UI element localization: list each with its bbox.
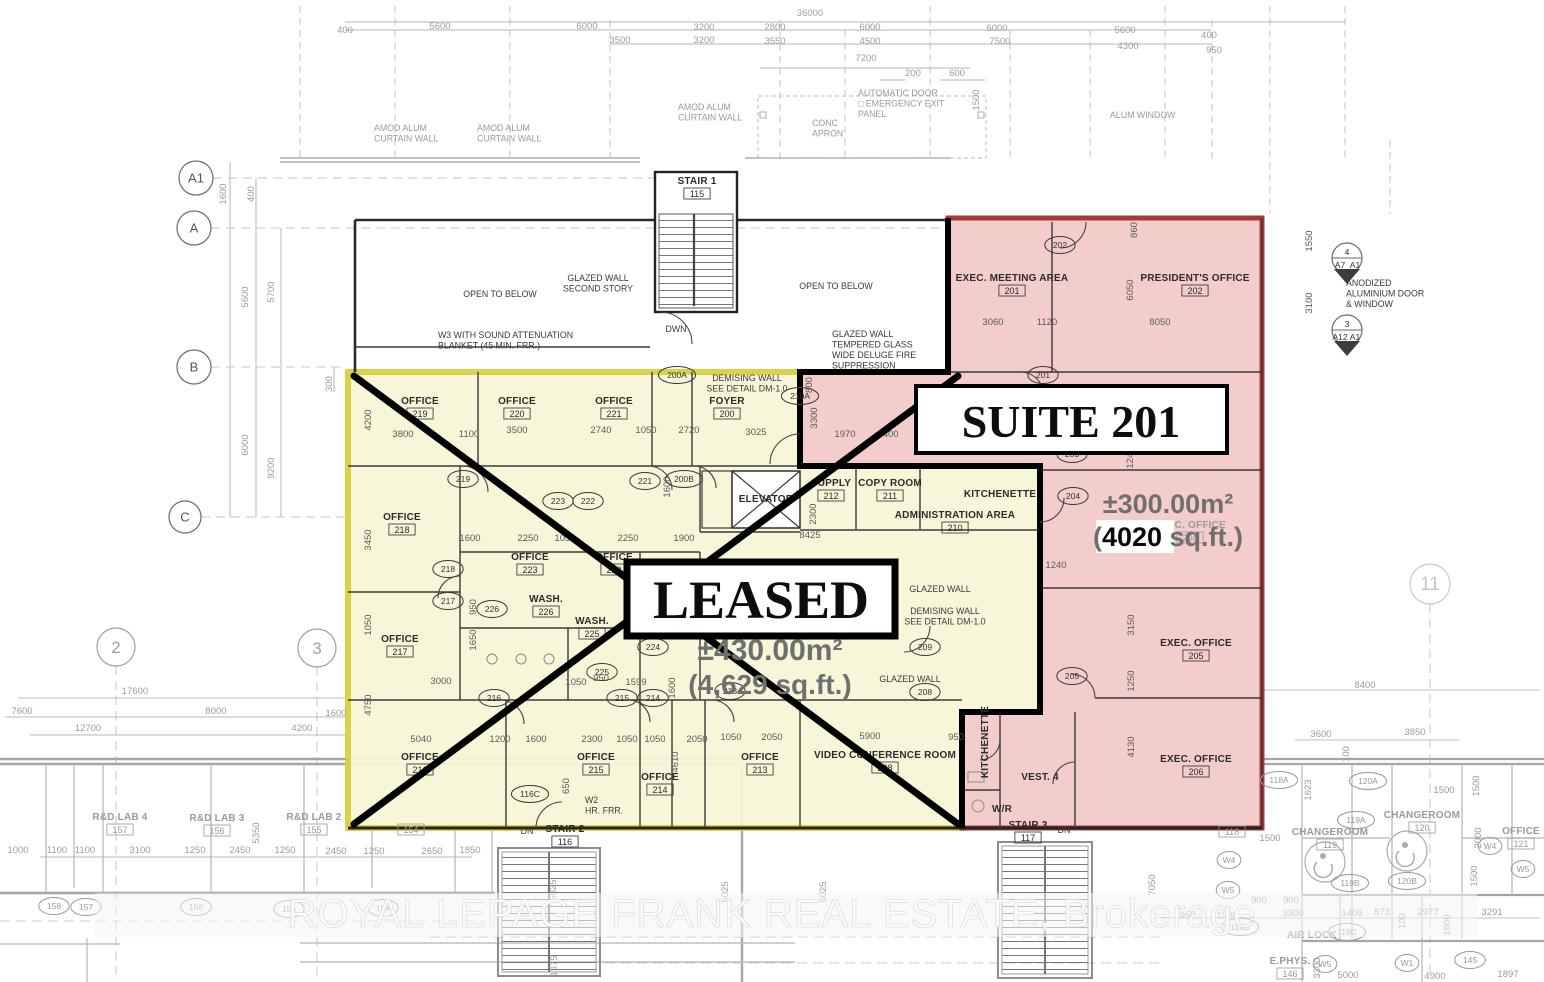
leased-area-m2: ±430.00m²: [698, 634, 843, 667]
room-number: 218: [394, 525, 409, 535]
room-number: 223: [522, 565, 537, 575]
dimension-label: 8400: [1354, 680, 1375, 691]
dimension-label: 1550: [1304, 230, 1315, 251]
dimension-label: 3200: [693, 35, 714, 46]
dimension-label: 1250: [274, 845, 295, 856]
dimension-label: 860: [1129, 222, 1140, 238]
dimension-label: 3291: [1481, 907, 1502, 918]
dimension-label: 400: [246, 186, 257, 202]
room-label: W/R: [992, 804, 1013, 815]
room-label: WASH.: [575, 616, 609, 627]
floor-plan-page: 3600040056006000320028006000600056004003…: [0, 0, 1544, 982]
room-label: OFFICE: [577, 752, 615, 763]
room-label: OFFICE: [381, 634, 419, 645]
door-tag: W5: [1517, 864, 1530, 874]
room-label: STAIR 1: [678, 176, 717, 187]
dimension-label: 7600: [11, 706, 32, 717]
room-number: 215: [588, 765, 603, 775]
room-label: OFFICE: [1502, 826, 1540, 837]
dimension-label: 4900: [1424, 971, 1445, 982]
dimension-label: 1100: [75, 845, 95, 856]
room-number: 157: [112, 825, 127, 835]
room-number: 202: [1187, 286, 1202, 296]
dimension-label: 2300: [808, 503, 819, 524]
room-number: 156: [209, 826, 224, 836]
dimension-label: 2300: [581, 734, 602, 745]
annotation-note: GLAZED WALL: [879, 674, 940, 684]
room-number: 121: [1513, 839, 1528, 849]
dimension-label: 1850: [459, 845, 480, 856]
dimension-label: 1897: [1497, 969, 1518, 980]
room-number: 221: [606, 409, 621, 419]
dimension-label: 3200: [693, 22, 714, 33]
room-number: 201: [1004, 286, 1019, 296]
room-label: OFFICE: [401, 396, 439, 407]
room-number: 118: [1225, 827, 1239, 837]
room-number: 205: [1188, 651, 1203, 661]
room-label: R&D LAB 2: [286, 812, 341, 823]
dimension-label: 1050: [720, 732, 741, 743]
room-number: 120: [1414, 823, 1429, 833]
dimension-label: 5600: [429, 21, 450, 32]
dimension-label: 2450: [229, 845, 250, 856]
door-tag: 222: [581, 496, 595, 506]
door-tag: 208: [918, 687, 932, 697]
door-tag: 200B: [674, 474, 694, 484]
dimension-label: 3600: [1310, 729, 1331, 740]
room-number: 212: [823, 491, 838, 501]
room-label: VEST. 4: [1021, 772, 1059, 783]
room-number: 154: [403, 825, 418, 835]
room-label: OFFICE: [498, 396, 536, 407]
door-tag: 201: [1036, 370, 1050, 380]
dimension-label: 200: [905, 68, 921, 79]
door-tag: 118A: [1269, 775, 1289, 785]
door-tag: 219: [456, 474, 470, 484]
dimension-label: 2740: [590, 425, 611, 436]
door-tag: 119B: [1340, 878, 1360, 888]
dimension-label: 3150: [1126, 614, 1137, 635]
grid-bubble-label: A: [190, 221, 199, 236]
dimension-label: 400: [337, 25, 353, 36]
door-tag: 205: [1065, 671, 1079, 681]
room-number: 225: [584, 629, 599, 639]
dimension-label: 3500: [609, 35, 630, 46]
door-tag: 120A: [1358, 776, 1378, 786]
door-tag: 217: [441, 596, 455, 606]
room-label: ADMINISTRATION AREA: [895, 510, 1015, 521]
room-label: STAIR 3: [1009, 820, 1048, 831]
dimension-label: 1050: [644, 734, 665, 745]
room-number: 210: [947, 523, 962, 533]
suite-area-m2: ±300.00m²: [1103, 489, 1233, 519]
watermark: ROYAL LEPAGE FRANK REAL ESTATE, Brokerag…: [95, 892, 1477, 937]
annotation-note: GLAZED WALLTEMPERED GLASSWIDE DELUGE FIR…: [832, 329, 916, 371]
dimension-label: 5700: [266, 281, 277, 302]
annotation-note: AMOD ALUMCURTAIN WALL: [477, 123, 541, 144]
dimension-label: 5350: [251, 822, 262, 843]
grid-bubble-label: 2: [111, 638, 120, 657]
dimension-label: 100: [1341, 746, 1352, 762]
dimension-label: 1600: [667, 677, 678, 698]
door-tag: 200A: [667, 370, 687, 380]
dimension-label: 2720: [678, 425, 699, 436]
dimension-label: 4200: [363, 409, 374, 430]
dimension-label: 4750: [363, 694, 374, 715]
dimension-label: 950: [948, 732, 964, 743]
door-tag: 120B: [1397, 876, 1417, 886]
dimension-label: 3000: [430, 676, 451, 687]
room-number: 220: [509, 409, 524, 419]
dimension-label: 1500: [1433, 785, 1454, 796]
dimension-label: 17600: [122, 686, 148, 697]
grid-bubble-label: B: [190, 360, 199, 375]
dimension-label: 3060: [982, 317, 1003, 328]
annotation-note: OPEN TO BELOW: [463, 289, 537, 299]
door-tag: 210A: [790, 391, 810, 401]
door-tag: 202: [1053, 240, 1067, 250]
annotation-note: AMOD ALUMCURTAIN WALL: [678, 102, 742, 123]
door-tag: W5: [1319, 959, 1332, 969]
dimension-label: 6050: [1125, 279, 1136, 300]
dimension-label: 2800: [764, 22, 785, 33]
dimension-label: 1375: [549, 955, 560, 976]
dimension-label: 1200: [489, 734, 510, 745]
room-label: R&D LAB 4: [92, 812, 147, 823]
door-tag: W1: [1401, 958, 1414, 968]
dimension-label: 3100: [129, 845, 150, 856]
annotation-note: AMOD ALUMCURTAIN WALL: [374, 123, 438, 144]
dimension-label: 4610: [670, 751, 681, 772]
door-tag: 209: [918, 642, 932, 652]
room-number: 206: [1188, 767, 1203, 777]
detail-marker-sheet: A7: [1335, 260, 1346, 270]
dimension-label: 8000: [205, 706, 226, 717]
door-tag: 224: [646, 642, 660, 652]
dimension-label: 9200: [266, 457, 277, 478]
room-label: OFFICE: [741, 752, 779, 763]
annotation-note: GLAZED WALLSECOND STORY: [563, 273, 633, 294]
door-tag: 204: [1066, 491, 1080, 501]
dimension-label: 1600: [459, 533, 480, 544]
annotation-note: ALUM WINDOW: [1110, 110, 1176, 120]
leased-title: LEASED: [653, 570, 869, 630]
room-label: OFFICE: [595, 396, 633, 407]
dimension-label: 1250: [363, 846, 384, 857]
door-tag: 218: [441, 564, 455, 574]
room-number: 119: [1323, 840, 1337, 850]
room-label: COPY ROOM: [858, 478, 922, 489]
door-tag: 214: [646, 693, 660, 703]
room-label: KITCHENETTE: [980, 706, 991, 778]
room-label: EXEC. OFFICE: [1160, 754, 1232, 765]
dimension-label: 1250: [184, 845, 205, 856]
dimension-label: 1500: [971, 89, 982, 110]
annotation-note: DEMISING WALLSEE DETAIL DM-1.0: [706, 373, 787, 394]
grid-bubble-label: A1: [188, 171, 204, 186]
annotation-note: ANODIZEDALUMINIUM DOOR& WINDOW: [1346, 278, 1424, 309]
room-number: 211: [883, 491, 897, 501]
detail-marker-sheet: A12: [1332, 332, 1347, 342]
dimension-label: 3025: [745, 427, 766, 438]
annotation-note: OPEN TO BELOW: [799, 281, 873, 291]
dimension-label: 3800: [392, 429, 413, 440]
dimension-label: 8425: [799, 530, 820, 541]
dimension-label: 1600: [325, 708, 346, 719]
dimension-label: 1240: [1045, 560, 1066, 571]
dimension-label: 3550: [764, 36, 785, 47]
dimension-label: 4200: [291, 723, 312, 734]
annotation-note: DN: [1058, 825, 1071, 835]
room-label: EXEC. OFFICE: [1160, 638, 1232, 649]
dimension-label: 5000: [1337, 970, 1358, 981]
room-label: FOYER: [709, 396, 745, 407]
dimension-label: 3850: [1404, 727, 1425, 738]
dimension-label: 1600: [662, 476, 673, 497]
dimension-label: 7500: [989, 36, 1010, 47]
door-tag: 116C: [520, 789, 540, 799]
door-tag: W4: [1223, 855, 1236, 865]
detail-marker-sheet: A1: [1350, 332, 1361, 342]
dimension-label: 1623: [1303, 779, 1314, 800]
annotation-note: DN: [521, 826, 534, 836]
dimension-label: 2250: [517, 533, 538, 544]
detail-marker-sheet: A1: [1350, 260, 1361, 270]
dimension-label: 3100: [1304, 292, 1315, 313]
dimension-label: 3500: [506, 425, 527, 436]
dimension-label: 4130: [1126, 736, 1137, 757]
dimension-label: 5040: [410, 734, 431, 745]
door-tag: 221: [638, 476, 652, 486]
dimension-label: 1050: [363, 614, 374, 635]
room-label: OFFICE: [383, 512, 421, 523]
dimension-label: 1500: [1259, 833, 1280, 844]
door-tag: 216: [487, 693, 501, 703]
dimension-label: 5900: [859, 731, 880, 742]
annotation-note: CONCAPRON: [812, 118, 843, 139]
room-number: 117: [1021, 833, 1035, 843]
suite-area-ft: (4020 sq.ft.): [1093, 522, 1243, 552]
dimension-label: 36000: [797, 8, 823, 19]
door-tag: 215: [615, 693, 629, 703]
leased-area-ft: (4,629 sq.ft.): [688, 669, 851, 700]
room-label: VIDEO CONFERENCE ROOM: [814, 750, 956, 761]
dimension-label: 1600: [525, 734, 546, 745]
room-label: WASH.: [529, 594, 563, 605]
dimension-label: 7200: [855, 53, 876, 64]
dimension-label: 950: [1206, 45, 1222, 56]
annotation-note: DWN: [665, 324, 686, 334]
room-label: STAIR 2: [546, 824, 585, 835]
room-number: 116: [558, 837, 572, 847]
grid-bubble-label: C: [180, 510, 189, 525]
dimension-label: 6000: [859, 22, 880, 33]
dimension-label: 1600: [218, 183, 229, 204]
door-tag: 145: [1463, 955, 1477, 965]
room-number: 200: [719, 409, 734, 419]
detail-marker-number: 4: [1345, 247, 1350, 257]
annotation-note: DEMISING WALLSEE DETAIL DM-1.0: [904, 606, 985, 627]
grid-bubble-label: 3: [312, 639, 321, 658]
door-tag: 225: [595, 667, 609, 677]
dimension-label: 4300: [1117, 41, 1138, 52]
floor-plan-drawing: 3600040056006000320028006000600056004003…: [0, 0, 1544, 982]
door-tag: 157: [79, 902, 93, 912]
room-label: CHANGEROOM: [1384, 810, 1460, 821]
dimension-label: 2650: [421, 846, 442, 857]
room-number: 155: [306, 825, 321, 835]
dimension-label: 1120: [1037, 317, 1057, 328]
dimension-label: 6000: [240, 434, 251, 455]
dimension-label: 1100: [47, 845, 67, 856]
dimension-label: 1050: [635, 425, 656, 436]
dimension-label: 1050: [565, 677, 586, 688]
dimension-label: 6000: [986, 23, 1007, 34]
room-label: R&D LAB 3: [189, 813, 244, 824]
room-number: 226: [538, 607, 553, 617]
dimension-label: 2050: [761, 732, 782, 743]
door-tag: W4: [1484, 841, 1497, 851]
dimension-label: 600: [949, 68, 965, 79]
dimension-label: 1900: [673, 533, 694, 544]
dimension-label: 1650: [468, 629, 479, 650]
door-tag: 158: [47, 901, 61, 911]
room-number: 214: [652, 785, 667, 795]
dimension-label: 1250: [1126, 670, 1137, 691]
room-label: KITCHENETTE: [964, 489, 1036, 500]
dimension-label: 5600: [240, 286, 251, 307]
room-number: 213: [752, 765, 767, 775]
detail-marker-number: 3: [1345, 319, 1350, 329]
detail-marker-arrow: [1334, 341, 1360, 356]
dimension-label: 1500: [1471, 775, 1482, 796]
dimension-label: 1970: [834, 429, 855, 440]
dimension-label: 300: [324, 376, 335, 392]
dimension-label: 1500: [1469, 865, 1480, 886]
dimension-label: 4500: [859, 36, 880, 47]
dimension-label: 2050: [686, 734, 707, 745]
room-label: OFFICE: [511, 552, 549, 563]
room-label: OFFICE: [641, 772, 679, 783]
door-tag: 223: [551, 496, 565, 506]
dimension-label: 1100: [459, 429, 479, 440]
dimension-label: 1050: [616, 734, 637, 745]
room-number: 146: [1282, 969, 1297, 979]
door-tag: 119A: [1346, 815, 1366, 825]
annotation-note: AUTOMATIC DOOR□ EMERGENCY EXITPANEL: [858, 88, 945, 119]
room-label: PRESIDENT'S OFFICE: [1140, 273, 1249, 284]
dimension-label: 12700: [75, 723, 101, 734]
dimension-label: 1599: [625, 677, 646, 688]
dimension-label: 400: [1201, 30, 1217, 41]
dimension-label: 2450: [325, 846, 346, 857]
dimension-label: 3450: [363, 529, 374, 550]
room-label: EXEC. MEETING AREA: [956, 273, 1069, 284]
dimension-label: 2250: [617, 533, 638, 544]
dimension-label: 8050: [1149, 317, 1170, 328]
dimension-label: 3300: [809, 407, 820, 428]
grid-bubble-label: 11: [1420, 574, 1440, 595]
dimension-label: 1000: [7, 845, 28, 856]
dimension-label: 650: [561, 778, 572, 794]
room-label: E.PHYS.: [1270, 956, 1311, 967]
annotation-note: GLAZED WALL: [909, 584, 970, 594]
suite-201-label: SUITE 201: [916, 386, 1227, 453]
dimension-label: 6000: [576, 21, 597, 32]
dimension-label: 5600: [1114, 25, 1135, 36]
suite-201-title: SUITE 201: [962, 396, 1181, 447]
room-number: 217: [392, 647, 407, 657]
door-tag: 226: [485, 604, 499, 614]
watermark-text: ROYAL LEPAGE FRANK REAL ESTATE, Brokerag…: [288, 892, 1257, 936]
room-number: 115: [690, 189, 704, 199]
